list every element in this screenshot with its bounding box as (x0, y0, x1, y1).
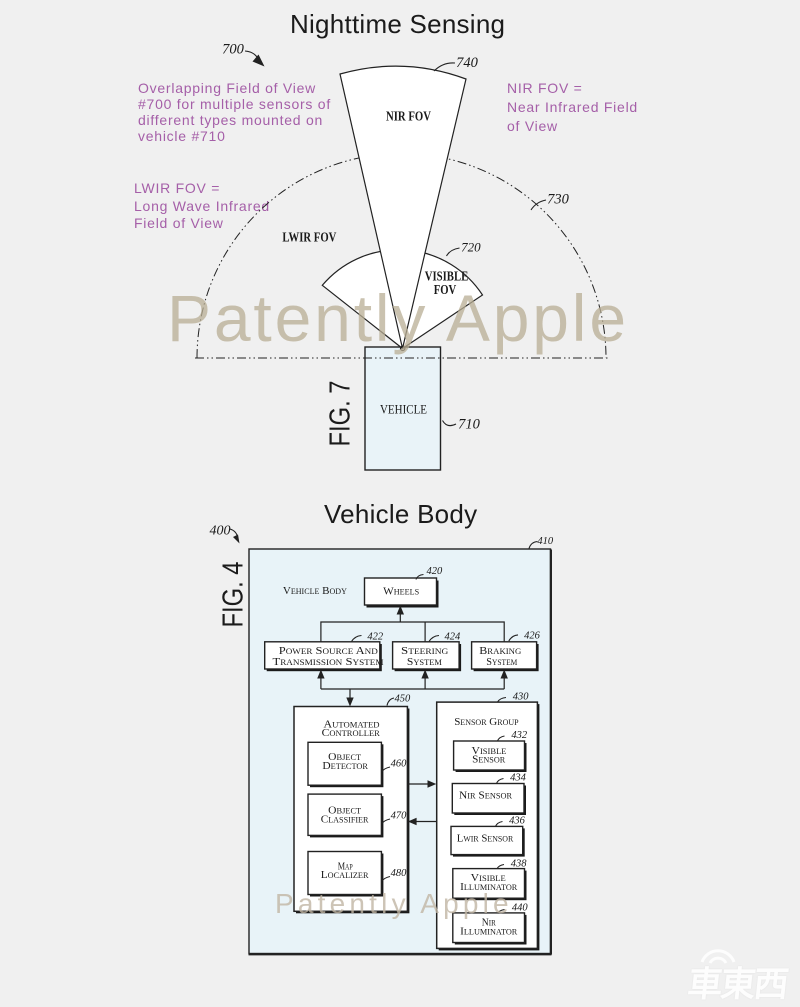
svg-text:730: 730 (547, 192, 570, 208)
svg-text:438: 438 (511, 859, 528, 870)
svg-text:System: System (486, 656, 517, 668)
svg-text:426: 426 (524, 631, 541, 642)
svg-text:Classifier: Classifier (321, 814, 369, 826)
svg-text:Vehicle Body: Vehicle Body (283, 585, 347, 597)
svg-text:434: 434 (510, 773, 527, 784)
svg-text:460: 460 (391, 758, 408, 769)
svg-text:740: 740 (456, 55, 479, 71)
svg-text:400: 400 (210, 524, 231, 539)
svg-text:710: 710 (458, 416, 481, 432)
svg-text:Localizer: Localizer (321, 869, 369, 881)
svg-text:700: 700 (222, 42, 245, 58)
svg-text:LWIR FOV: LWIR FOV (282, 231, 336, 246)
svg-text:Lwir Sensor: Lwir Sensor (457, 833, 514, 845)
svg-text:480: 480 (391, 868, 408, 879)
svg-text:FIG. 4: FIG. 4 (218, 562, 250, 628)
svg-text:Wheels: Wheels (383, 586, 419, 598)
svg-text:430: 430 (513, 691, 530, 702)
svg-text:420: 420 (427, 566, 444, 577)
svg-text:440: 440 (512, 903, 529, 914)
svg-text:410: 410 (537, 536, 554, 547)
svg-text:FIG. 7: FIG. 7 (325, 381, 357, 447)
svg-text:System: System (407, 656, 442, 668)
svg-text:470: 470 (391, 811, 408, 822)
svg-text:Illuminator: Illuminator (460, 925, 518, 937)
svg-text:450: 450 (395, 693, 412, 704)
svg-text:432: 432 (511, 730, 528, 741)
svg-text:Detector: Detector (322, 760, 368, 772)
svg-text:436: 436 (509, 815, 526, 826)
svg-text:Transmission System: Transmission System (273, 656, 384, 668)
svg-text:VEHICLE: VEHICLE (380, 402, 427, 417)
svg-text:Nir Sensor: Nir Sensor (459, 790, 513, 802)
svg-text:720: 720 (461, 239, 481, 254)
svg-text:424: 424 (445, 632, 462, 643)
svg-text:422: 422 (367, 632, 384, 643)
svg-text:NIR FOV: NIR FOV (386, 110, 431, 125)
svg-text:Sensor: Sensor (472, 753, 506, 765)
svg-text:Controller: Controller (322, 727, 381, 739)
svg-text:Sensor Group: Sensor Group (454, 716, 519, 728)
